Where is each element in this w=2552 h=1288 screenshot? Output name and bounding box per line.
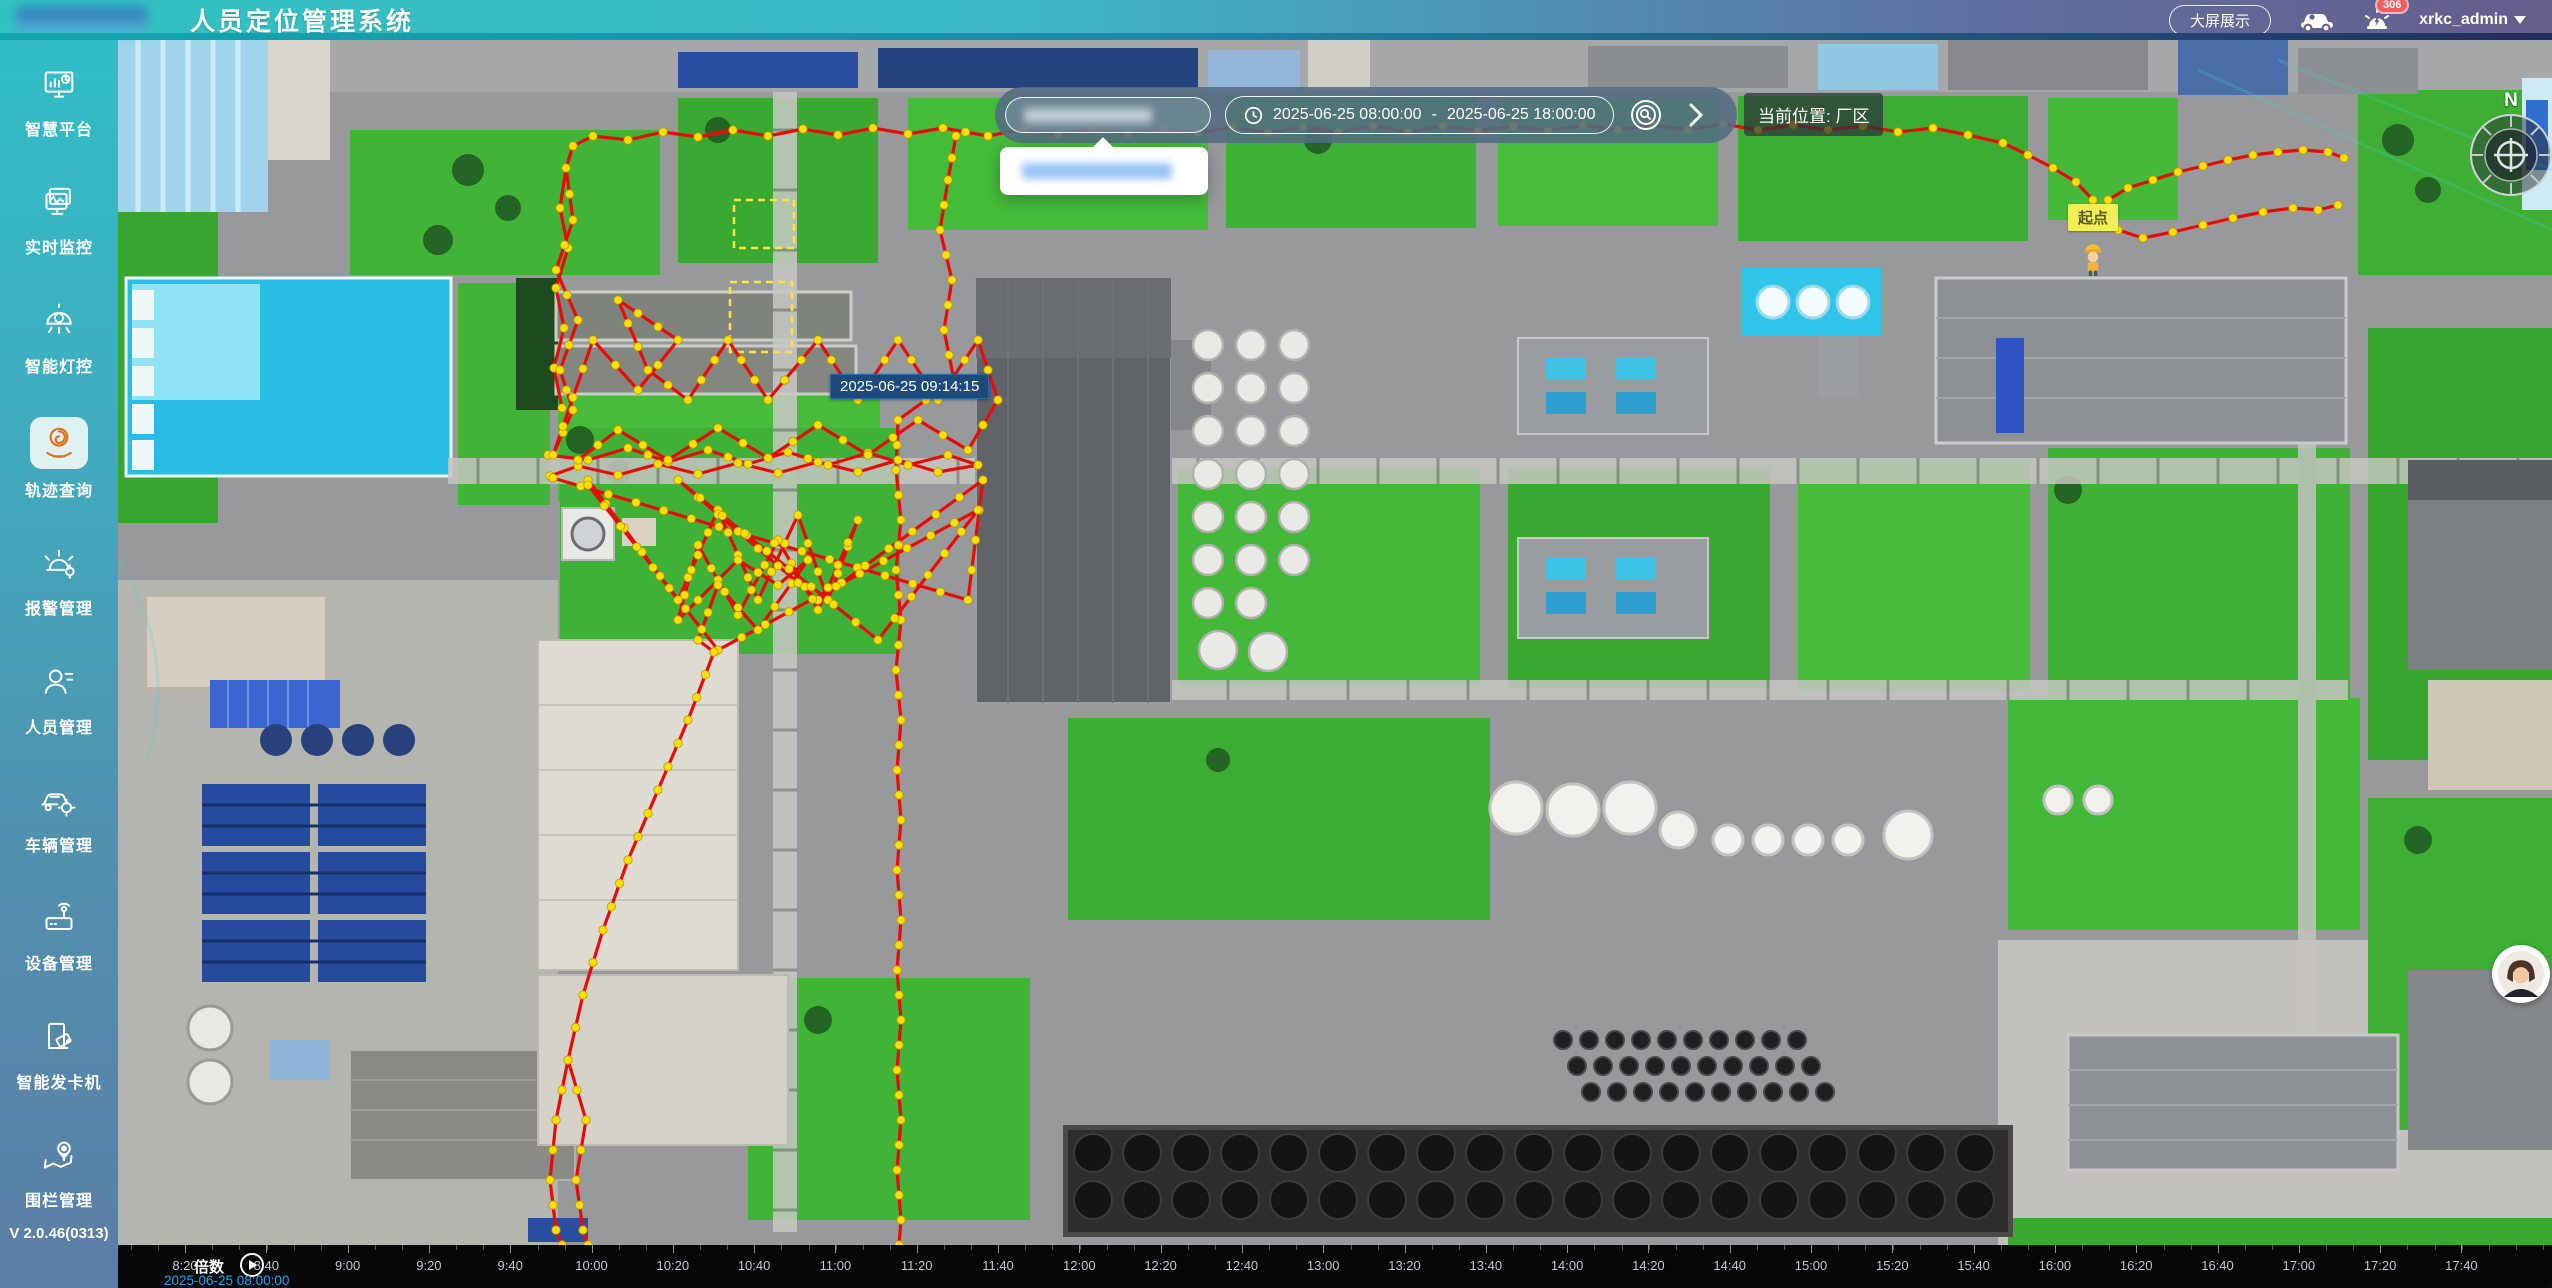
compass-control[interactable]: N bbox=[2466, 90, 2552, 240]
fence-management-icon bbox=[36, 1133, 82, 1179]
timeline-tick-label: 16:40 bbox=[2201, 1258, 2234, 1273]
avatar bbox=[2498, 951, 2544, 997]
person-avatar-marker[interactable] bbox=[2492, 945, 2550, 1003]
big-screen-button[interactable]: 大屏展示 bbox=[2169, 5, 2271, 36]
timeline-tick-label: 10:20 bbox=[657, 1258, 690, 1273]
alarm-bell-icon[interactable]: 306 bbox=[2363, 6, 2391, 34]
sidebar-item-vehicle-management[interactable]: 车辆管理 bbox=[0, 778, 118, 856]
sidebar-item-smart-platform[interactable]: 智慧平台 bbox=[0, 62, 118, 140]
clock-icon bbox=[1244, 106, 1263, 125]
playback-current-time: 2025-06-25 08:00:00 bbox=[164, 1273, 289, 1288]
track-query-toolbar: 2025-06-25 08:00:00 - 2025-06-25 18:00:0… bbox=[995, 87, 1737, 143]
chevron-right-icon bbox=[1688, 102, 1704, 128]
app-window: 人员定位管理系统 大屏展示 306 bbox=[0, 0, 2552, 1288]
timeline-tick-label: 11:00 bbox=[820, 1258, 852, 1273]
timeline-tick-label: 15:20 bbox=[1876, 1258, 1909, 1273]
app-title: 人员定位管理系统 bbox=[190, 2, 414, 38]
personnel-management-icon bbox=[36, 660, 82, 706]
header-bar: 人员定位管理系统 大屏展示 306 bbox=[0, 0, 2552, 40]
sidebar-item-smart-light[interactable]: 智能灯控 bbox=[0, 299, 118, 377]
sidebar-item-personnel-management[interactable]: 人员管理 bbox=[0, 660, 118, 738]
person-search-input[interactable] bbox=[1005, 97, 1211, 133]
timeline-tick-label: 15:00 bbox=[1795, 1258, 1828, 1273]
company-logo bbox=[16, 7, 148, 34]
sidebar-item-label: 人员管理 bbox=[25, 714, 93, 738]
alarm-management-icon bbox=[36, 541, 82, 587]
timeline-tick-label: 9:00 bbox=[335, 1258, 360, 1273]
timeline-tick-label: 12:20 bbox=[1144, 1258, 1177, 1273]
timeline-tick-label: 14:40 bbox=[1713, 1258, 1746, 1273]
sidebar-item-fence-management[interactable]: 围栏管理 bbox=[0, 1133, 118, 1211]
sidebar-item-label: 车辆管理 bbox=[25, 832, 93, 856]
timeline-tick-label: 14:00 bbox=[1551, 1258, 1584, 1273]
worker-marker[interactable] bbox=[2080, 240, 2106, 276]
sidebar-item-label: 实时监控 bbox=[25, 234, 93, 258]
locate-search-button[interactable] bbox=[1628, 97, 1664, 133]
username-label: xrkc_admin bbox=[2419, 11, 2508, 29]
sidebar-item-label: 智能发卡机 bbox=[16, 1069, 101, 1093]
sidebar-item-alarm-management[interactable]: 报警管理 bbox=[0, 541, 118, 619]
current-location-label: 当前位置: 厂区 bbox=[1744, 93, 1883, 136]
redacted-suggestion-item bbox=[1022, 163, 1172, 179]
realtime-monitor-icon bbox=[36, 180, 82, 226]
timeline-tick-label: 10:00 bbox=[575, 1258, 608, 1273]
timeline-tick-label: 13:40 bbox=[1470, 1258, 1503, 1273]
chevron-down-icon bbox=[2514, 16, 2526, 24]
timeline-tick-label: 15:40 bbox=[1957, 1258, 1990, 1273]
person-suggestion-dropdown[interactable] bbox=[1000, 147, 1208, 195]
version-label: V 2.0.46(0313) bbox=[9, 1225, 108, 1242]
sidebar-item-realtime-monitor[interactable]: 实时监控 bbox=[0, 180, 118, 258]
timeline-tick-label: 9:40 bbox=[498, 1258, 523, 1273]
timeline-tick-label: 9:20 bbox=[416, 1258, 441, 1273]
timeline-tick-label: 13:00 bbox=[1307, 1258, 1340, 1273]
timeline-tick-label: 13:20 bbox=[1388, 1258, 1421, 1273]
user-menu[interactable]: xrkc_admin bbox=[2419, 11, 2526, 29]
sidebar-item-label: 设备管理 bbox=[25, 950, 93, 974]
vehicle-management-icon bbox=[36, 778, 82, 824]
sidebar: 智慧平台 实时监控 智能灯控 bbox=[0, 40, 118, 1288]
track-time-tooltip: 2025-06-25 09:14:15 bbox=[830, 374, 989, 399]
sidebar-item-label: 智慧平台 bbox=[25, 116, 93, 140]
smart-platform-icon bbox=[36, 62, 82, 108]
card-dispenser-icon bbox=[36, 1015, 82, 1061]
timeline-tick-label: 17:20 bbox=[2364, 1258, 2397, 1273]
compass-north-label: N bbox=[2504, 90, 2518, 112]
date-separator: - bbox=[1432, 106, 1437, 124]
date-end: 2025-06-25 18:00:00 bbox=[1447, 106, 1596, 124]
device-management-icon bbox=[36, 896, 82, 942]
map-viewport[interactable]: 2025-06-25 08:00:00 - 2025-06-25 18:00:0… bbox=[118, 40, 2552, 1245]
timeline-tick-label: 12:40 bbox=[1226, 1258, 1259, 1273]
factory-map-scene bbox=[118, 40, 2552, 1245]
sidebar-item-label: 报警管理 bbox=[25, 595, 93, 619]
timeline-tick-label: 12:00 bbox=[1063, 1258, 1096, 1273]
sidebar-item-label: 围栏管理 bbox=[25, 1187, 93, 1211]
track-query-icon bbox=[30, 417, 88, 469]
timeline-tick-label: 17:00 bbox=[2283, 1258, 2316, 1273]
start-point-badge: 起点 bbox=[2068, 204, 2118, 231]
date-start: 2025-06-25 08:00:00 bbox=[1273, 106, 1422, 124]
timeline-tick-label: 16:00 bbox=[2039, 1258, 2072, 1273]
sidebar-item-label: 轨迹查询 bbox=[25, 477, 93, 501]
sidebar-item-device-management[interactable]: 设备管理 bbox=[0, 896, 118, 974]
date-range-picker[interactable]: 2025-06-25 08:00:00 - 2025-06-25 18:00:0… bbox=[1225, 96, 1614, 134]
timeline-tick-label: 14:20 bbox=[1632, 1258, 1665, 1273]
compass-icon bbox=[2468, 112, 2552, 198]
timeline-tick-label: 11:20 bbox=[901, 1258, 933, 1273]
vehicle-icon[interactable] bbox=[2299, 8, 2335, 32]
timeline-tick-label: 16:20 bbox=[2120, 1258, 2153, 1273]
timeline-tick-label: 11:40 bbox=[982, 1258, 1014, 1273]
sidebar-item-card-dispenser[interactable]: 智能发卡机 bbox=[0, 1015, 118, 1093]
sidebar-item-track-query[interactable]: 轨迹查询 bbox=[0, 417, 118, 501]
smart-light-icon bbox=[36, 299, 82, 345]
timeline-tick-label: 10:40 bbox=[738, 1258, 771, 1273]
sidebar-item-label: 智能灯控 bbox=[25, 353, 93, 377]
alarm-count-badge: 306 bbox=[2375, 0, 2409, 14]
timeline-tick-label: 17:40 bbox=[2445, 1258, 2478, 1273]
playback-timeline[interactable]: 8:208:409:009:209:4010:0010:2010:4011:00… bbox=[118, 1245, 2552, 1288]
play-track-button[interactable] bbox=[1678, 97, 1714, 133]
redacted-person-name bbox=[1024, 108, 1152, 123]
